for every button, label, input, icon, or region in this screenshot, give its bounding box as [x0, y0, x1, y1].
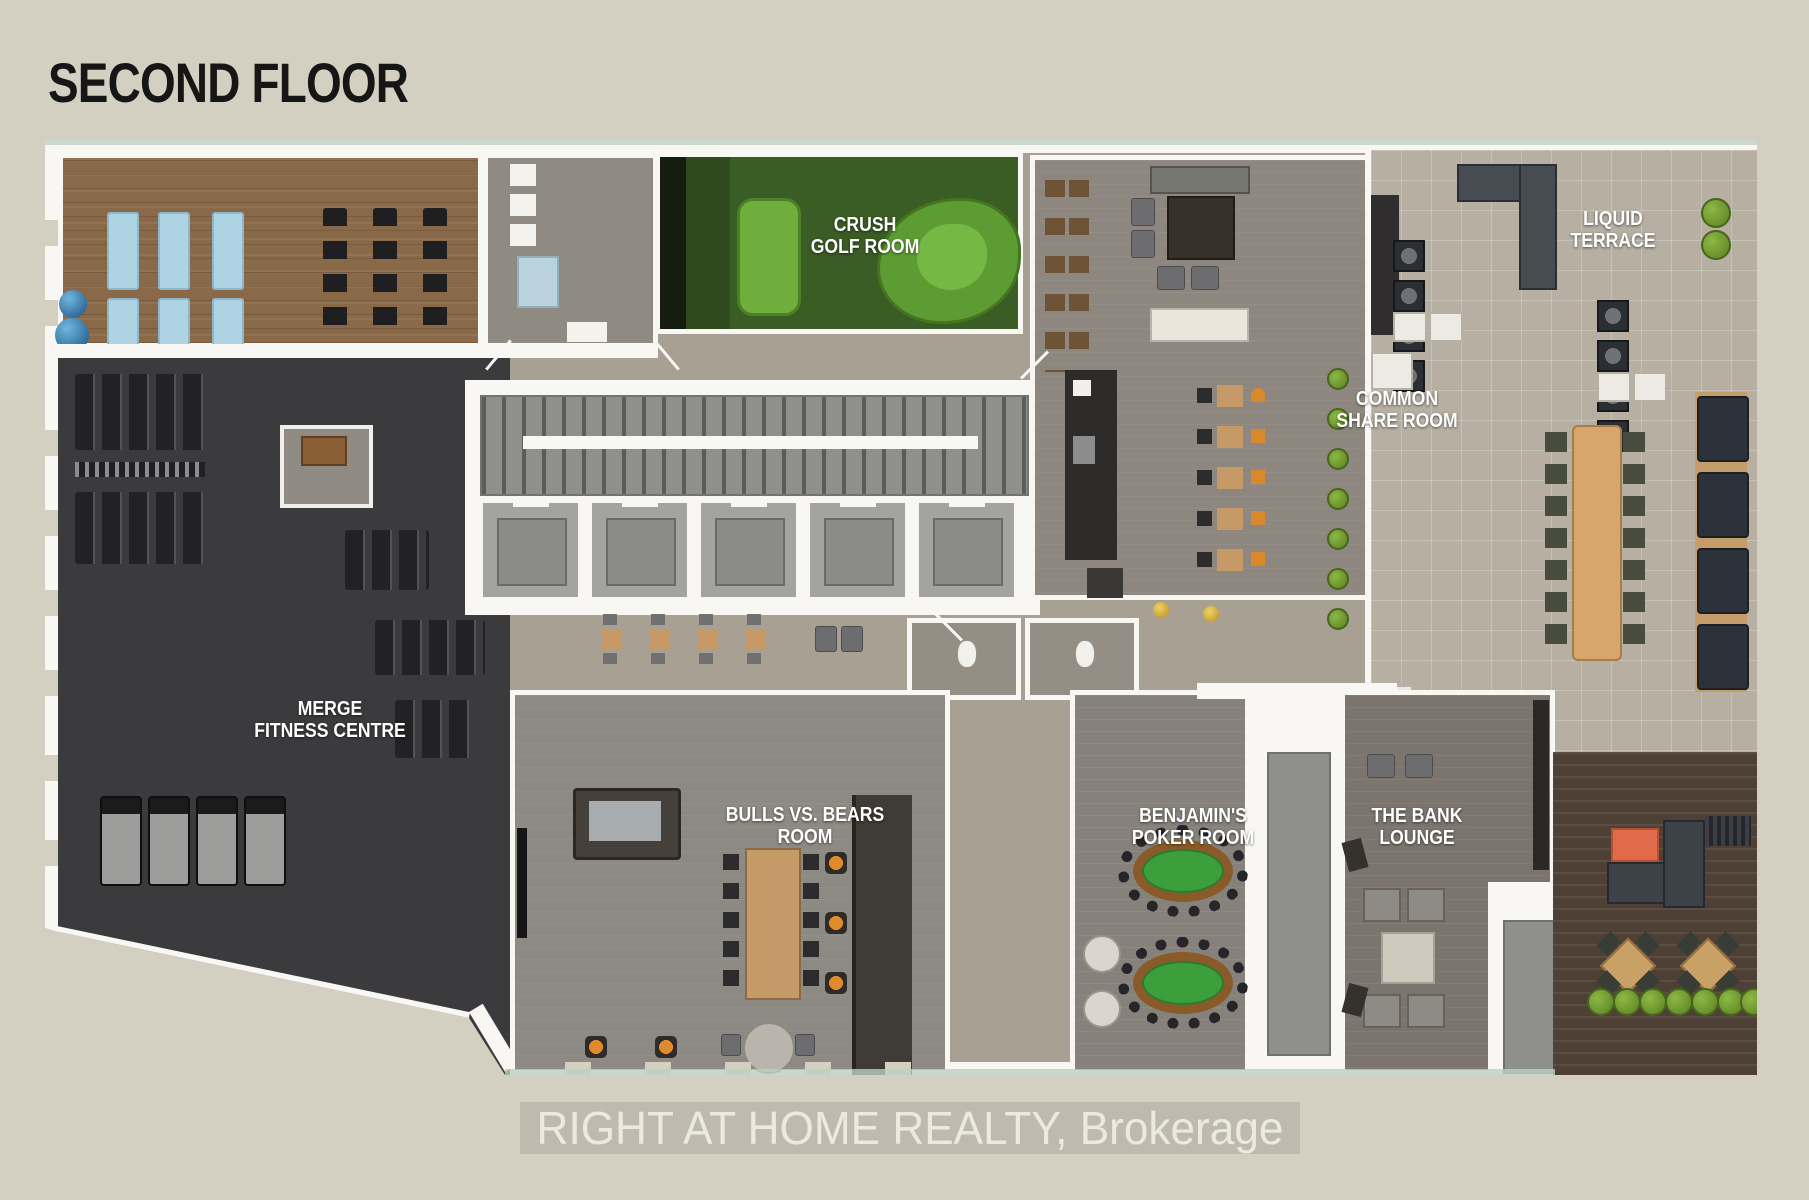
- elevator-interior: [824, 518, 894, 586]
- yoga-mat: [107, 298, 139, 348]
- bottom-wall-accent: [505, 1069, 1555, 1075]
- lounge-armchair: [1407, 994, 1445, 1028]
- wall-tv: [517, 828, 527, 938]
- poker-table-felt: [1142, 849, 1224, 893]
- bbq-grill: [1393, 240, 1425, 272]
- sectional-sofa: [1663, 820, 1705, 908]
- lounge-armchair: [1363, 888, 1401, 922]
- terrace-planter: [1701, 198, 1731, 228]
- shuffleboard-surface: [589, 801, 661, 841]
- floor-light: [1203, 606, 1219, 622]
- boardroom-table: [745, 848, 801, 1000]
- poker-table-felt: [1142, 961, 1224, 1005]
- window-notch: [45, 670, 58, 696]
- elevator-interior: [606, 518, 676, 586]
- planter: [1327, 528, 1349, 550]
- lounge-armchair: [1367, 754, 1395, 778]
- bench-row: [375, 620, 485, 675]
- exercise-ball: [59, 290, 87, 318]
- window-notch: [45, 430, 58, 456]
- kitchen-island: [1087, 568, 1123, 598]
- deck-shrub: [1587, 988, 1615, 1016]
- bar-stool: [825, 972, 847, 994]
- boardroom-chairs: [723, 854, 739, 994]
- stair-divider: [523, 436, 978, 449]
- weight-machines-row: [75, 374, 207, 450]
- accent-sofa: [1611, 828, 1659, 862]
- terrace-table: [1597, 372, 1631, 402]
- treadmill: [100, 796, 142, 886]
- wall-chairs-column: [1045, 180, 1065, 372]
- lounge-coffee-table: [1381, 932, 1435, 984]
- yoga-mat: [107, 212, 139, 290]
- room-label-benjamins-poker: BENJAMIN'S POKER ROOM: [1132, 805, 1254, 849]
- elevator-interior: [715, 518, 785, 586]
- lounge-armchair: [1407, 888, 1445, 922]
- functional-rig: [395, 700, 471, 758]
- dumbbell-rack: [75, 462, 205, 477]
- sun-lounger: [1697, 396, 1749, 462]
- planter: [1327, 368, 1349, 390]
- elevator-door-gap: [622, 498, 658, 507]
- planter: [1327, 488, 1349, 510]
- lounge-chair: [1157, 266, 1185, 290]
- bar-stool: [825, 912, 847, 934]
- sun-lounger: [1697, 624, 1749, 690]
- window-notch: [45, 220, 58, 246]
- communal-table: [1572, 425, 1622, 661]
- deck-shrub: [1665, 988, 1693, 1016]
- terrace-table: [1633, 372, 1667, 402]
- room-label-crush-golf: CRUSH GOLF ROOM: [811, 214, 920, 258]
- elevator-door-gap: [840, 498, 876, 507]
- terrace-table: [1429, 312, 1463, 342]
- bbq-cluster: [1393, 240, 1459, 306]
- round-table-chair: [721, 1034, 741, 1056]
- plunge-pool: [517, 256, 559, 308]
- window-notch: [45, 840, 58, 866]
- planter: [1327, 448, 1349, 470]
- bbq-grill: [1597, 340, 1629, 372]
- floor-plan: CRUSH GOLF ROOM COMMON SHARE ROOM LIQUID…: [45, 140, 1757, 1075]
- media-wall: [1533, 700, 1549, 870]
- yoga-mat: [158, 298, 190, 348]
- page-title: SECOND FLOOR: [48, 50, 408, 115]
- lounge-stool: [585, 1036, 607, 1058]
- vestibule-door: [567, 322, 607, 342]
- weight-machines-row: [75, 492, 207, 564]
- kitchen-appliance: [1073, 436, 1095, 464]
- yoga-mat: [158, 212, 190, 290]
- yoga-mat: [212, 212, 244, 290]
- poker-table: [1133, 952, 1233, 1014]
- room-label-bank-lounge: THE BANK LOUNGE: [1372, 805, 1463, 849]
- floor-light: [1153, 602, 1169, 618]
- lounge-sofa: [1150, 166, 1250, 194]
- sun-lounger: [1697, 548, 1749, 614]
- deck-shrub: [1691, 988, 1719, 1016]
- terrace-table: [1393, 312, 1427, 342]
- corridor-chair: [815, 626, 837, 652]
- bbq-cluster: [1597, 300, 1663, 366]
- elevator-door-gap: [731, 498, 767, 507]
- yoga-mat: [212, 298, 244, 348]
- lounge-stool: [655, 1036, 677, 1058]
- treadmill: [196, 796, 238, 886]
- poker-table: [1133, 840, 1233, 902]
- bbq-grill: [1393, 280, 1425, 312]
- room-label-bulls-bears: BULLS VS. BEARS ROOM: [726, 804, 884, 848]
- cafe-tables-row: [601, 629, 771, 649]
- floor-plan-page: SECOND FLOOR: [0, 0, 1809, 1200]
- lounge-armchair: [1363, 994, 1401, 1028]
- window-notch: [45, 755, 58, 781]
- kitchen-counter: [1065, 370, 1117, 560]
- boardroom-chairs: [803, 854, 819, 994]
- communal-chairs: [1623, 432, 1645, 654]
- wall-chairs-column: [1069, 180, 1089, 372]
- outdoor-sofa: [1519, 164, 1557, 290]
- lounge-table: [1167, 196, 1235, 260]
- room-label-liquid-terrace: LIQUID TERRACE: [1570, 208, 1655, 252]
- elevator-interior: [933, 518, 1003, 586]
- sun-lounger: [1697, 472, 1749, 538]
- toilet: [1075, 640, 1095, 668]
- lounge-chair: [1191, 266, 1219, 290]
- deck-shrub: [1740, 988, 1768, 1016]
- cafe-chairs-row: [603, 653, 773, 664]
- planter: [1327, 608, 1349, 630]
- dining-chairs-orange: [1251, 388, 1265, 588]
- fitness-wall: [58, 344, 658, 358]
- deck-grill: [1705, 816, 1751, 846]
- watermark: RIGHT AT HOME REALTY, Brokerage: [537, 1101, 1284, 1155]
- room-label-common-share: COMMON SHARE ROOM: [1336, 388, 1457, 432]
- office-desk: [301, 436, 347, 466]
- bar-stool: [825, 852, 847, 874]
- elevator-door-gap: [513, 498, 549, 507]
- lounge-chair: [1131, 198, 1155, 226]
- elevator-interior: [497, 518, 567, 586]
- golf-tee-area: [737, 198, 801, 316]
- planter: [1327, 568, 1349, 590]
- exit-stair-shaft: [1267, 752, 1331, 1056]
- treadmill: [148, 796, 190, 886]
- spin-bike-row: [323, 208, 347, 338]
- spin-bike-row: [373, 208, 397, 338]
- window-notch: [45, 590, 58, 616]
- dining-tables-column: [1217, 385, 1243, 590]
- window-notch: [45, 510, 58, 536]
- room-label-merge-fitness: MERGE FITNESS CENTRE: [254, 698, 406, 742]
- deck-floor: [1553, 752, 1757, 1075]
- side-table: [1083, 990, 1121, 1028]
- round-table-chair: [795, 1034, 815, 1056]
- bbq-grill: [1597, 300, 1629, 332]
- window-notch: [45, 300, 58, 326]
- toilet: [957, 640, 977, 668]
- kitchen-sink: [1073, 380, 1091, 396]
- top-wall-accent: [45, 140, 1757, 145]
- lounge-armchair: [1405, 754, 1433, 778]
- deck-shrub: [1639, 988, 1667, 1016]
- harvest-table: [1150, 308, 1249, 342]
- treadmill: [244, 796, 286, 886]
- lounge-chair: [1131, 230, 1155, 258]
- terrace-bench: [1371, 352, 1413, 390]
- terrace-planter: [1701, 230, 1731, 260]
- corridor-chair: [841, 626, 863, 652]
- deck-shrub: [1613, 988, 1641, 1016]
- spin-bike-row: [423, 208, 447, 338]
- cafe-chairs-row: [603, 614, 773, 625]
- communal-chairs: [1545, 432, 1567, 654]
- side-table: [1083, 935, 1121, 973]
- elevator-door-gap: [949, 498, 985, 507]
- dining-chairs-dark: [1197, 388, 1212, 588]
- sink-fixtures: [510, 164, 536, 250]
- cable-machines: [345, 530, 429, 590]
